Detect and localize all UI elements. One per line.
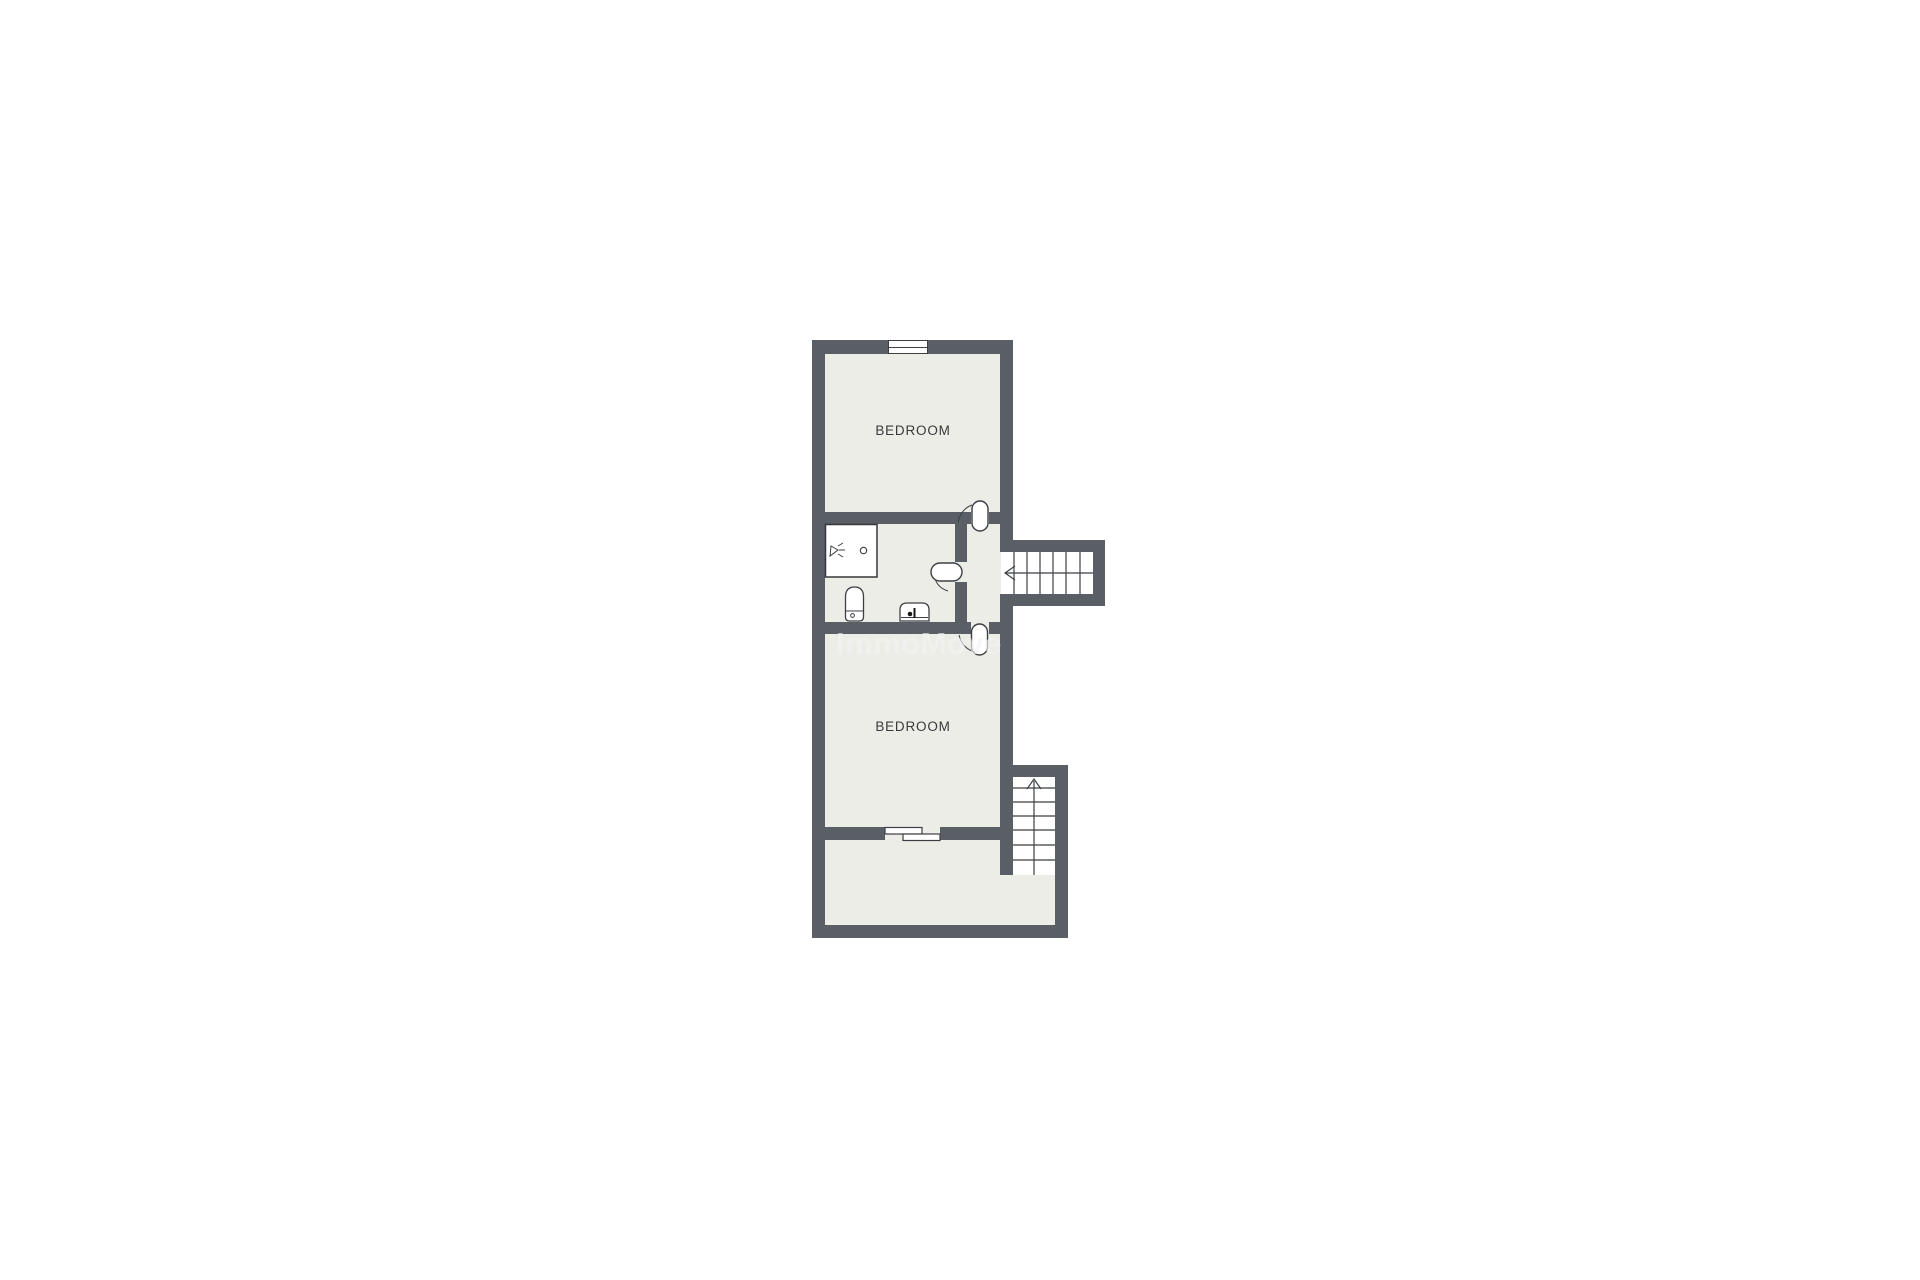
wall-bath-hall-b [955,582,967,622]
wall-bath-hall-a [955,524,967,562]
door-opening-floor [971,512,989,524]
wall-corridor-top [1013,540,1105,552]
room-bathroom-hall-floor [825,524,1001,622]
wall-bedroom1-divider-a [812,512,971,524]
stairs-lower-right-treads [1013,777,1055,875]
wall-left-outer [812,340,825,938]
room-label-bedroom-2: BEDROOM [825,720,1001,734]
floorplan-page: BEDROOM BEDROOM ImmoMove [0,0,1920,1280]
wall-east-lower [1055,765,1068,938]
wall-top-outer-a [812,340,888,354]
stairs-upper-right-treads [1001,552,1093,594]
wall-corridor-right [1093,540,1105,606]
wall-bedroom2-bottom-a [812,827,885,840]
window-top [888,340,928,354]
window-pane-line [889,347,927,348]
wall-stair-left [1001,765,1013,875]
door-opening-floor [955,562,967,582]
wall-corridor-bottom [1013,594,1105,606]
wall-bottom-outer [812,925,1068,938]
door-opening-floor [885,827,940,840]
wall-bedroom1-divider-b [989,512,1013,524]
room-label-bedroom-1: BEDROOM [825,424,1001,438]
watermark-text: ImmoMove [836,626,1002,662]
wall-bedroom2-bottom-b [940,827,1013,840]
